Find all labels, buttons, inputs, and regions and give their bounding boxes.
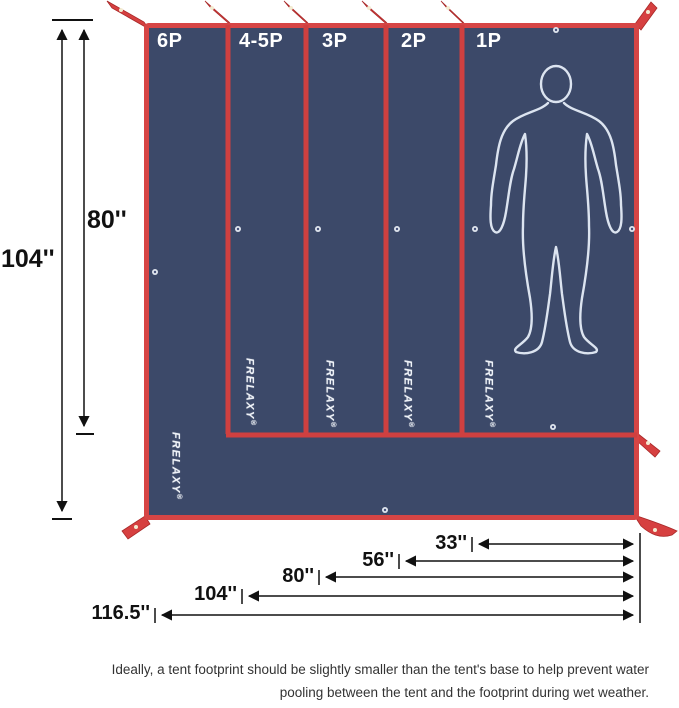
grommet-icon [235,226,241,232]
grommet-icon [629,226,635,232]
strap-hole-icon [646,441,650,445]
registered-mark-icon: ® [488,422,495,427]
brand-name: FRELAXY [169,432,181,494]
width-label-56: 56'' [362,549,394,572]
registered-mark-icon: ® [329,422,336,427]
tie-strap-icon [107,1,149,29]
brand-logo: FRELAXY® [400,360,417,427]
registered-mark-icon: ® [175,494,182,499]
panel-label-3p: 3P [322,30,347,53]
strap-hole-icon [119,8,123,12]
panel-label-1p: 1P [476,30,501,53]
brand-name: FRELAXY [482,360,494,422]
width-label-33: 33'' [435,532,467,555]
tie-strap-icon [637,433,660,457]
strap-hole-icon [289,6,293,10]
grommet-icon [315,226,321,232]
strap-hole-icon [134,525,138,529]
brand-logo: FRELAXY® [168,432,185,499]
width-label-116: 116.5'' [92,602,150,625]
brand-name: FRELAXY [401,360,413,422]
grommet-icon [394,226,400,232]
brand-logo: FRELAXY® [481,360,498,427]
width-label-80: 80'' [282,565,314,588]
width-label-104: 104'' [194,583,237,606]
panel-label-6p: 6P [157,30,182,53]
caption-line-1: Ideally, a tent footprint should be slig… [19,658,649,681]
panel-label-4-5p: 4-5P [239,30,283,53]
caption-line-2: pooling between the tent and the footpri… [19,681,649,704]
strap-hole-icon [367,6,371,10]
strap-hole-icon [446,6,450,10]
strap-hole-icon [653,528,657,532]
grommet-icon [550,424,556,430]
footnote-caption: Ideally, a tent footprint should be slig… [19,658,649,704]
strap-hole-icon [210,6,214,10]
brand-name: FRELAXY [323,360,335,422]
grommet-icon [553,27,559,33]
brand-logo: FRELAXY® [322,360,339,427]
height-label-104: 104'' [1,245,55,274]
strap-hole-icon [646,10,650,14]
brand-name: FRELAXY [243,358,255,420]
panel-label-2p: 2P [401,30,426,53]
grommet-icon [382,507,388,513]
tent-footprint-size-diagram: 6P 4-5P 3P 2P 1P FRELAXY® FRELAXY® FRELA… [0,0,679,708]
grommet-icon [152,269,158,275]
brand-logo: FRELAXY® [242,358,259,425]
registered-mark-icon: ® [249,420,256,425]
grommet-icon [472,226,478,232]
height-label-80: 80'' [87,206,127,235]
registered-mark-icon: ® [407,422,414,427]
